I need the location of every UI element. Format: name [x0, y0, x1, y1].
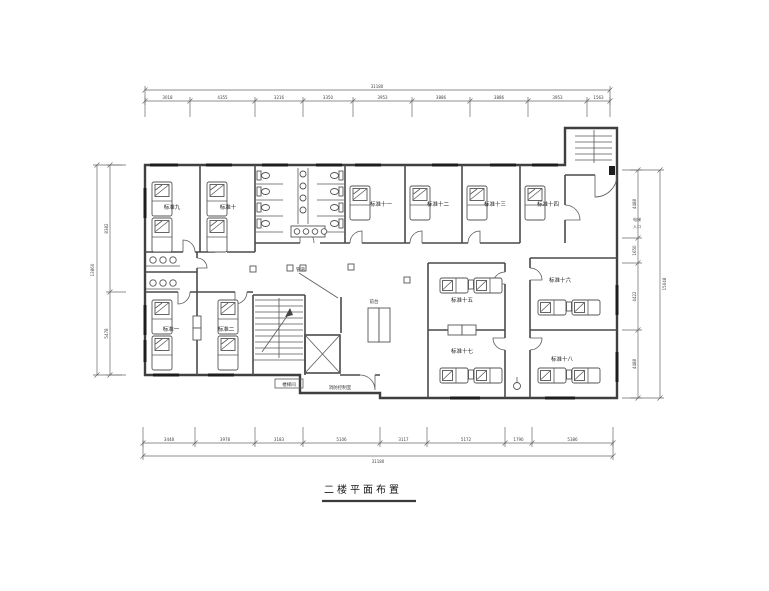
bed-symbol [538, 368, 566, 383]
toilet-icon [331, 203, 344, 212]
bed-symbol [474, 368, 502, 383]
fire-control-label: 消防控制室 [329, 384, 352, 391]
dim-segment-label: 4422 [632, 291, 637, 302]
dim-chain-left: 83825478 [104, 163, 126, 378]
bed-symbol [474, 278, 502, 293]
title-block: 二楼平面布置 [322, 483, 416, 501]
bed-symbol [538, 300, 566, 315]
room-label: 标准十七 [451, 347, 474, 355]
dim-total-right: 15048 [662, 277, 667, 290]
room-label: 标准一 [163, 325, 180, 333]
bed-symbol [207, 218, 227, 252]
dim-totals: 31180 31180 13860 15048 [90, 84, 667, 464]
dim-segment-label: 5386 [567, 437, 578, 442]
entry-staircase [575, 130, 612, 163]
dim-segment-label: 3350 [323, 95, 334, 100]
room-label: 标准十 [220, 203, 237, 211]
elevator-entry-label: 入口 [633, 224, 641, 229]
interior-walls-left [145, 252, 380, 375]
dim-segment-label: 5172 [461, 437, 472, 442]
dim-segment-label: 3216 [274, 95, 285, 100]
front-desk-label: 前台 [370, 298, 379, 305]
room-label: 标准十一 [370, 200, 393, 208]
toilet-icon [331, 219, 344, 228]
floor-plan-drawing: 标准九 标准十 标准十一 标准十二 标准十三 标准十四 标准一 标准二 标准十五… [0, 0, 769, 591]
room-label: 标准十三 [484, 200, 507, 208]
bed-symbol [572, 368, 600, 383]
room-label: 标准十五 [451, 296, 474, 304]
main-staircase [253, 298, 305, 360]
washrooms-left [146, 257, 180, 289]
bed-symbol [218, 336, 238, 370]
bed-symbol [152, 218, 172, 252]
bed-symbol [350, 186, 370, 220]
stair-box-label: 楼梯间 [282, 381, 296, 388]
dim-segment-label: 3953 [377, 95, 388, 100]
room-label: 标准十四 [537, 200, 559, 208]
bed-symbol [152, 336, 172, 370]
dim-segment-label: 3448 [164, 437, 175, 442]
dim-segment-label: 1563 [593, 95, 604, 100]
dim-segment-label: 3953 [552, 95, 563, 100]
duct-symbol [287, 265, 293, 271]
beds [152, 182, 600, 383]
dim-segment-label: 5106 [336, 437, 347, 442]
dim-segment-label: 3886 [436, 95, 447, 100]
dim-total-left: 13860 [90, 263, 95, 276]
outer-walls [145, 128, 617, 398]
front-desk [368, 308, 379, 342]
room-label: 标准十八 [551, 355, 574, 363]
duct-label: 管道 [296, 266, 305, 273]
toilet-icon [257, 219, 270, 228]
room-label: 标准二 [218, 325, 235, 333]
dim-segment-label: 4488 [632, 358, 637, 369]
dim-total-bottom: 31180 [372, 459, 385, 464]
dim-segment-label: 4355 [217, 95, 228, 100]
dim-segment-label: 3978 [220, 437, 231, 442]
toilet-icon [257, 203, 270, 212]
dim-segment-label: 3018 [162, 95, 173, 100]
bed-symbol [440, 278, 468, 293]
elevator [305, 335, 340, 373]
dim-segment-label: 4488 [632, 198, 637, 209]
room-label: 标准九 [164, 203, 181, 211]
dim-segment-label: 3117 [398, 437, 409, 442]
dim-segment-label: 3183 [274, 437, 285, 442]
dim-segment-label: 1790 [513, 437, 524, 442]
dim-segment-label: 5478 [104, 328, 109, 339]
dim-segment-label: 3886 [494, 95, 505, 100]
toilet-icon [331, 187, 344, 196]
dim-chain-top: 301843553216335039533886388639531563 [143, 95, 613, 117]
toilet-block [255, 168, 345, 237]
dim-chain-bottom: 34483978318351063117517217905386 [141, 427, 616, 447]
toilet-icon [257, 171, 270, 180]
bed-symbol [572, 300, 600, 315]
dim-segment-label: 1650 [632, 245, 637, 256]
drawing-title: 二楼平面布置 [324, 483, 402, 496]
floor-plan-page: 标准九 标准十 标准十一 标准十二 标准十三 标准十四 标准一 标准二 标准十五… [0, 0, 769, 591]
elevator-entry-label: 电梯 [633, 216, 641, 222]
toilet-icon [331, 171, 344, 180]
dim-total-top: 31180 [371, 84, 384, 89]
bed-symbol [440, 368, 468, 383]
room-label: 标准十六 [549, 276, 572, 284]
dim-segment-label: 8382 [104, 223, 109, 234]
dim-chain-right: 4488165044224488 [622, 168, 642, 401]
room-label: 标准十二 [427, 200, 450, 208]
toilet-icon [257, 187, 270, 196]
